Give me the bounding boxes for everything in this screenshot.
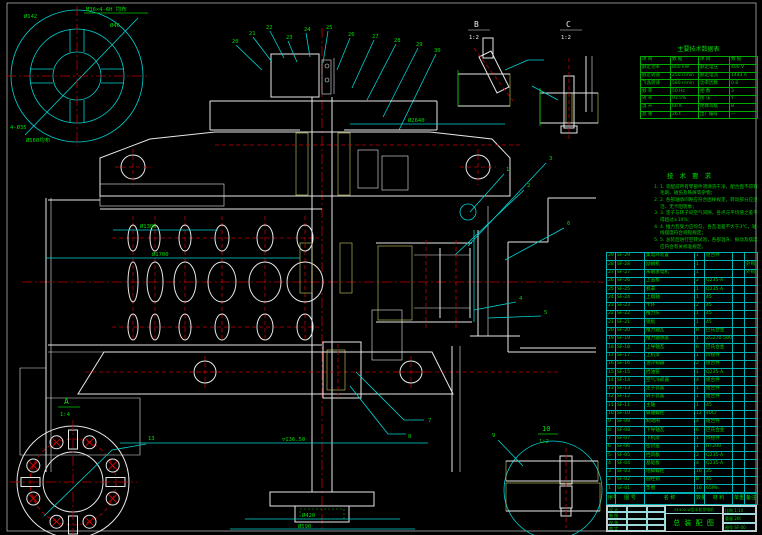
title-block-signatures: 设 计 制 图 校 核 审 定 [607,506,665,531]
svg-text:22: 22 [266,25,273,31]
svg-text:9: 9 [492,433,495,439]
svg-text:Ø560均布: Ø560均布 [26,136,51,144]
svg-text:6: 6 [567,221,570,227]
svg-text:23: 23 [286,35,293,41]
spec-table: 项 目数 据项 目数 据额定功率800 kW额定电压400 V额定转速250 r… [640,56,758,119]
svg-text:2: 2 [527,183,530,189]
svg-text:1:2: 1:2 [539,439,549,445]
svg-text:10: 10 [542,425,550,433]
svg-text:20: 20 [232,39,239,45]
parts-list-header: 序号 图 号 名 称 数量 材 料 单重 备注 [606,492,758,505]
svg-text:13: 13 [148,436,155,442]
svg-text:C: C [566,20,571,29]
svg-text:4-Ø35: 4-Ø35 [10,124,27,131]
svg-text:5: 5 [544,310,547,316]
svg-text:30: 30 [434,48,441,54]
detail-view-c [532,30,598,140]
svg-text:Ø420: Ø420 [302,512,315,519]
vent-hole-grid [112,216,323,342]
svg-text:27: 27 [372,34,379,40]
svg-text:1: 1 [506,167,509,173]
svg-text:1:2: 1:2 [561,35,571,41]
technical-requirements: 技 术 要 求 1. 装配前所有零部件须清洗干净，配合面不得有毛刺、碰伤及铁屑等… [620,170,760,256]
svg-text:8: 8 [408,434,411,440]
svg-text:B: B [474,20,479,29]
svg-text:Ø142: Ø142 [24,13,37,20]
svg-text:28: 28 [394,38,401,44]
spec-table-title: 主要技术数据表 [640,44,757,53]
balloon-leaders [236,31,436,130]
cad-drawing-sheet: Ø142M36×4-6H 均布Ø464-Ø35Ø560均布20212223242… [0,0,762,535]
detail-view-10 [498,434,602,535]
svg-text:29: 29 [416,42,423,48]
svg-text:26: 26 [348,32,355,38]
technical-requirements-title: 技 术 要 求 [620,170,760,180]
svg-text:3: 3 [549,156,552,162]
svg-text:1:2: 1:2 [469,35,479,41]
svg-text:Ø46: Ø46 [110,22,120,29]
title-block: 设 计 制 图 校 核 审 定 SF400-W型水轮发电机 总 装 配 图 比例… [606,505,757,532]
svg-text:M36×4-6H 均布: M36×4-6H 均布 [86,5,127,13]
detail-view-b [458,30,544,106]
svg-text:Ø1300: Ø1300 [140,223,157,230]
view-flywheel-top-left [6,6,150,146]
station-name: SF400-W型水轮发电机 [666,506,722,514]
svg-text:A: A [64,397,69,406]
svg-text:Ø2640: Ø2640 [408,117,425,124]
svg-text:21: 21 [249,31,256,37]
svg-text:Ø590: Ø590 [298,523,311,530]
drawing-title: 总 装 配 图 [666,514,722,531]
svg-text:4: 4 [519,296,523,302]
view-a-flange-bottom-left [10,407,146,535]
svg-text:25: 25 [326,25,333,31]
svg-text:7: 7 [428,418,431,424]
svg-text:▽136.50: ▽136.50 [282,437,305,443]
svg-text:Ø1700: Ø1700 [152,251,169,258]
svg-text:24: 24 [304,27,311,33]
dimension-annotations: Ø142M36×4-6H 均布Ø464-Ø35Ø560均布20212223242… [10,5,571,530]
title-block-info: 比例 1:10 重量 26t 图号 SF-00 [723,506,756,531]
technical-requirements-list: 1. 装配前所有零部件须清洗干净，配合面不得有毛刺、碰伤及铁屑等杂物；2. 各部… [620,185,760,252]
parts-list-table: 29SF-29集电环装置1组合件28SF-28励磁机1外购27SF-27永磁发电… [606,252,758,494]
svg-text:1:4: 1:4 [60,412,71,418]
bearing-assembly [376,204,520,336]
